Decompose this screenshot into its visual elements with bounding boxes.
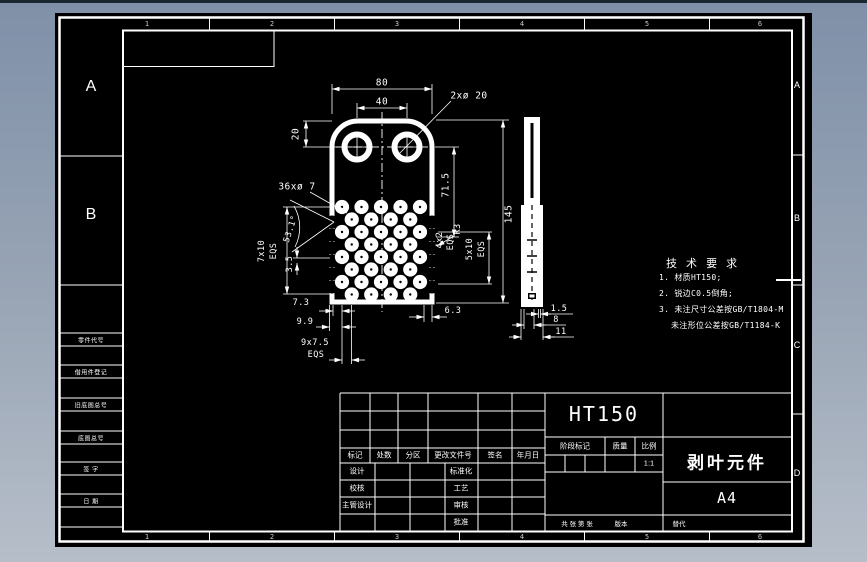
- edge-notch: [341, 281, 343, 283]
- cad-window: 80 40 2xø 20 20 71.5 145 36xø 7 53.1° 7x…: [0, 0, 867, 562]
- edge-notch: [351, 243, 353, 245]
- edge-notch: [370, 268, 372, 270]
- front-view: [326, 101, 452, 312]
- dim-label-1-5: 1.5: [551, 304, 568, 314]
- zone-number-top: 2: [270, 20, 274, 28]
- dim-label-height: 145: [504, 205, 515, 224]
- edge-notch: [360, 256, 362, 258]
- edge-notch: [419, 256, 421, 258]
- tb-sheet-count: 共 张 第 张: [561, 518, 592, 528]
- dim-label-71-5: 71.5: [441, 173, 452, 198]
- edge-notch: [341, 206, 343, 208]
- tb-header-mark: 标记: [348, 450, 363, 461]
- zone-number-bottom: 1: [145, 533, 149, 541]
- edge-notch: [426, 216, 439, 229]
- tb-audit: 审核: [454, 500, 469, 511]
- edge-notch: [419, 231, 421, 233]
- dim-label-3-5: 3.5: [285, 256, 295, 273]
- edge-notch: [409, 293, 411, 295]
- zone-number-bottom: 2: [270, 533, 274, 541]
- tb-header-sign: 签名: [488, 450, 503, 461]
- dim-label-rows: 7x10: [257, 240, 267, 262]
- edge-notch: [399, 231, 401, 233]
- edge-notch: [399, 206, 401, 208]
- edge-notch: [399, 256, 401, 258]
- tb-header-doc: 更改文件号: [434, 450, 472, 461]
- edge-notch: [419, 206, 421, 208]
- edge-notch: [390, 293, 392, 295]
- dim-label-cols: 9x7.5: [301, 338, 329, 348]
- edge-notch: [360, 206, 362, 208]
- margin-table-label: 底图总号: [78, 433, 104, 442]
- edge-notch: [360, 281, 362, 283]
- margin-table-label: 日 期: [83, 496, 98, 505]
- dim-label-9-9: 9.9: [297, 317, 314, 327]
- edge-notch: [380, 281, 382, 283]
- edge-notch: [409, 218, 411, 220]
- zone-letter-left: A: [86, 78, 97, 96]
- dim-label-cols-eqs: EQS: [308, 350, 325, 360]
- edge-notch: [380, 256, 382, 258]
- tb-process: 工艺: [454, 483, 469, 494]
- zone-number-bottom: 3: [395, 533, 399, 541]
- edge-notch: [426, 268, 439, 281]
- edge-notch: [370, 293, 372, 295]
- tb-sheet-size: A4: [717, 489, 737, 507]
- zone-number-top: 5: [645, 20, 649, 28]
- edge-notch: [426, 255, 439, 268]
- tb-approve: 批准: [454, 517, 469, 528]
- edge-notch: [409, 268, 411, 270]
- tb-replace: 替代: [673, 518, 686, 528]
- tech-req-line-3: 3. 未注尺寸公差按GB/T1804-M: [659, 304, 784, 315]
- zone-number-top: 6: [758, 20, 762, 28]
- dim-label-notch: 4x2: [435, 232, 445, 249]
- tech-req-line-2: 2. 锐边C0.5倒角;: [659, 288, 733, 299]
- margin-table-label: 借用件登记: [75, 367, 108, 376]
- tb-material: HT150: [569, 402, 639, 426]
- edge-notch: [351, 218, 353, 220]
- zone-letter-right: D: [794, 468, 801, 478]
- margin-table-label: 签 字: [83, 464, 98, 473]
- edge-notch: [380, 206, 382, 208]
- tech-req-line-4: 未注形位公差按GB/T1184-K: [671, 320, 780, 331]
- edge-notch: [390, 218, 392, 220]
- tb-part-name: 剥叶元件: [687, 449, 767, 474]
- edge-notch: [390, 268, 392, 270]
- edge-notch: [370, 243, 372, 245]
- dim-label-small-holes: 36xø 7: [278, 182, 315, 193]
- zone-number-bottom: 4: [520, 533, 524, 541]
- edge-notch: [409, 243, 411, 245]
- edge-notch: [351, 268, 353, 270]
- margin-table-label: 零件代号: [78, 335, 104, 344]
- edge-notch: [341, 256, 343, 258]
- dim-label-8: 8: [553, 315, 559, 325]
- tb-stage-label: 阶段标记: [560, 441, 590, 452]
- edge-notch: [426, 281, 439, 294]
- tb-header-date: 年月日: [517, 450, 540, 461]
- edge-notch: [360, 231, 362, 233]
- tb-scale-value: 1:1: [644, 459, 654, 468]
- edge-notch: [370, 218, 372, 220]
- zone-number-bottom: 6: [758, 533, 762, 541]
- tb-standardize: 标准化: [450, 466, 473, 477]
- dim-label-rows-eqs: EQS: [269, 243, 279, 260]
- zone-number-top: 3: [395, 20, 399, 28]
- dim-label-holes-top: 2xø 20: [450, 91, 487, 102]
- dim-label-6-3: 6.3: [445, 306, 462, 316]
- tb-header-count: 处数: [377, 450, 392, 461]
- tech-req-line-1: 1. 材质HT150;: [659, 272, 722, 283]
- edge-notch: [341, 231, 343, 233]
- dim-label-11: 11: [555, 327, 566, 337]
- tb-header-zone: 分区: [406, 450, 421, 461]
- zone-letter-left: B: [86, 206, 97, 224]
- dim-label-top-offset: 20: [291, 128, 302, 140]
- dim-label-inner: 40: [376, 97, 388, 108]
- zone-letter-right: C: [794, 340, 801, 350]
- drawing-linework: [0, 0, 867, 562]
- tb-version: 版本: [615, 518, 628, 528]
- dim-label-notch-eqs: EQS: [446, 234, 456, 251]
- tb-mass-label: 质量: [613, 441, 628, 452]
- edge-notch: [399, 281, 401, 283]
- margin-table-label: 旧底图总号: [75, 400, 108, 409]
- dim-label-notch-sp-eqs: EQS: [477, 241, 487, 258]
- side-view: [521, 117, 543, 307]
- dim-label-7-3: 7.3: [293, 298, 310, 308]
- tech-req-title: 技 术 要 求: [666, 255, 740, 271]
- dim-label-notch-sp: 5x10: [465, 238, 475, 260]
- tb-scale-label: 比例: [642, 441, 657, 452]
- tb-chief-design: 主管设计: [342, 500, 372, 511]
- edge-notch: [351, 293, 353, 295]
- edge-notch: [380, 231, 382, 233]
- zone-letter-right: A: [794, 80, 800, 90]
- edge-notch: [390, 243, 392, 245]
- zone-number-top: 1: [145, 20, 149, 28]
- zone-number-bottom: 5: [645, 533, 649, 541]
- edge-notch: [419, 281, 421, 283]
- tb-check: 校核: [350, 483, 365, 494]
- zone-letter-right: B: [794, 213, 800, 223]
- tb-design: 设计: [350, 466, 365, 477]
- dim-label-width: 80: [376, 78, 388, 89]
- zone-number-top: 4: [520, 20, 524, 28]
